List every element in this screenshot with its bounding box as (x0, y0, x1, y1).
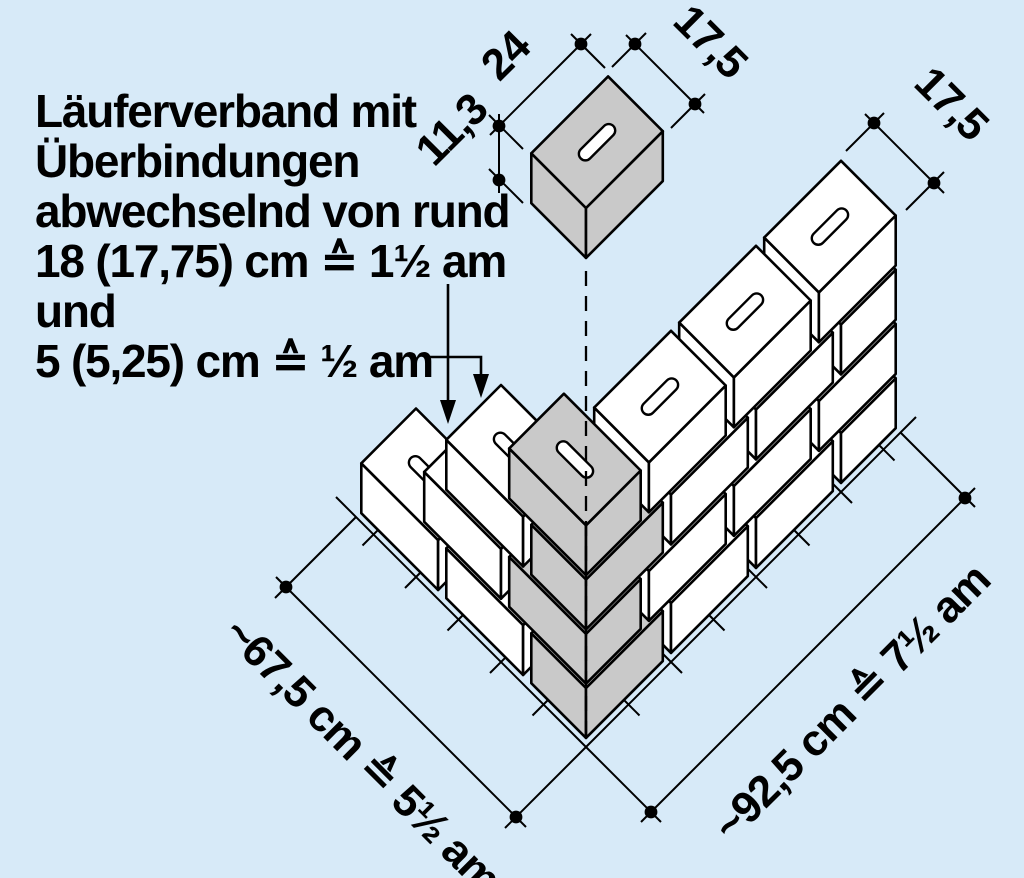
annotation-line: Läuferverband mit (35, 85, 417, 137)
dimension-dot (280, 581, 293, 594)
dimension-dot (928, 177, 941, 190)
annotation-line: 5 (5,25) cm ≙ ½ am (35, 335, 433, 387)
annotation-line: und (35, 285, 116, 337)
dimension-dot (868, 117, 881, 130)
dimension-dot (629, 38, 642, 51)
dimension-dot (959, 492, 972, 505)
dimension-dot (575, 38, 588, 51)
annotation-line: abwechselnd von rund (35, 185, 509, 237)
dimension-dot (689, 98, 702, 111)
bond-diagram-svg: 24 11,3 17,5 17,5 ~67,5 cm ≙ 5½ am (0, 0, 1024, 878)
dimension-dot (645, 806, 658, 819)
masonry-bond-figure: 24 11,3 17,5 17,5 ~67,5 cm ≙ 5½ am (0, 0, 1024, 878)
annotation-line: Überbindungen (35, 135, 359, 187)
dimension-dot (510, 811, 523, 824)
annotation-line: 18 (17,75) cm ≙ 1½ am (35, 235, 506, 287)
